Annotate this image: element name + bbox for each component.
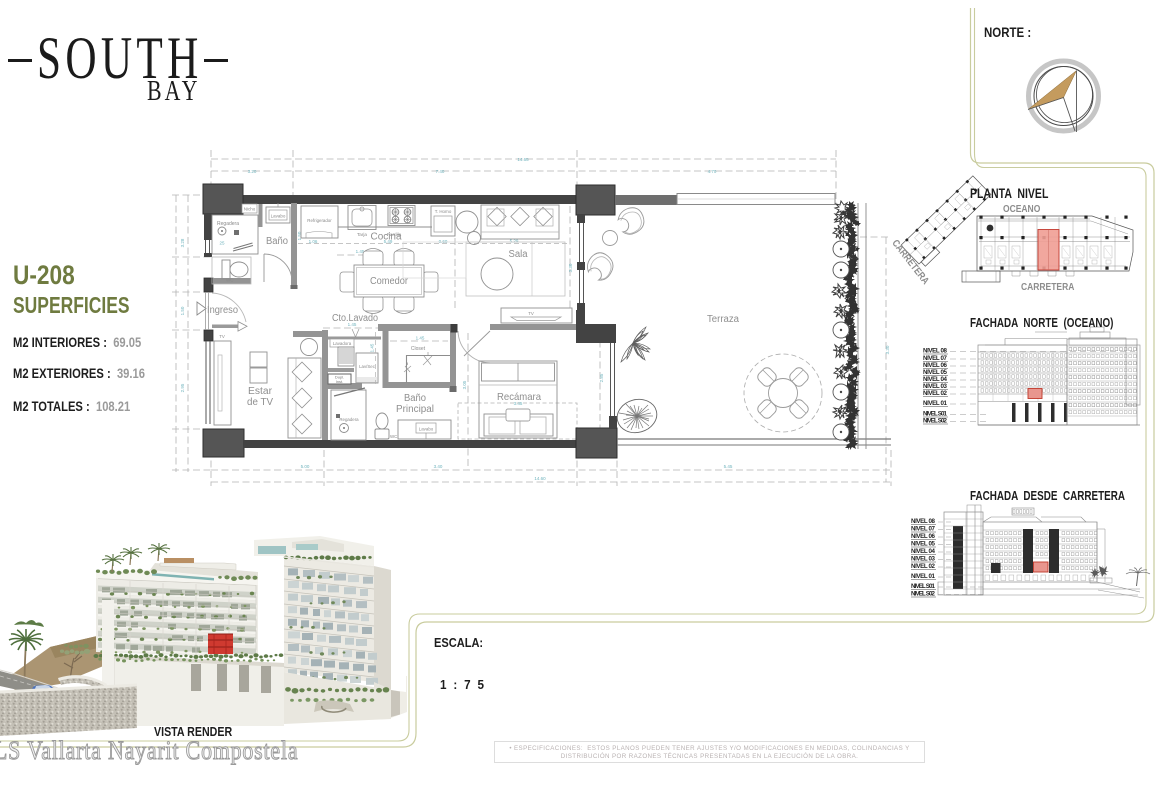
svg-text:Closet: Closet [411,346,426,352]
svg-text:NIVEL 07: NIVEL 07 [923,355,948,362]
svg-text:NIVEL 06: NIVEL 06 [923,362,948,369]
svg-text:1.45: 1.45 [416,336,425,341]
svg-text:de TV: de TV [247,397,273,408]
svg-text:1.45: 1.45 [370,343,375,352]
svg-text:NIVEL 01: NIVEL 01 [923,400,948,407]
svg-text:Inst.: Inst. [336,379,344,384]
svg-text:NIVEL 05: NIVEL 05 [923,369,948,376]
svg-text:Lavabo: Lavabo [271,214,286,219]
svg-text:3.40: 3.40 [434,464,443,469]
svg-text:3.28: 3.28 [180,238,185,247]
svg-text:NIVEL 04: NIVEL 04 [923,376,948,383]
svg-text:NIVEL 07: NIVEL 07 [911,526,936,533]
svg-text:TV: TV [219,334,225,339]
svg-text:1.50: 1.50 [180,306,185,315]
svg-text:NIVEL 03: NIVEL 03 [911,556,936,563]
svg-text:WC: WC [226,278,234,283]
svg-text:Regadera: Regadera [339,417,359,422]
svg-text:Terraza: Terraza [707,314,739,325]
svg-text:NIVEL 03: NIVEL 03 [923,383,948,390]
svg-text:NIVEL S01: NIVEL S01 [923,411,948,418]
svg-text:Lavadora: Lavadora [333,341,352,346]
svg-text:14.65: 14.65 [517,157,529,162]
svg-text:5.00: 5.00 [301,464,310,469]
svg-text:NIVEL S02: NIVEL S02 [923,418,948,425]
svg-text:Principal: Principal [396,404,434,415]
svg-text:Estar: Estar [248,386,273,397]
svg-text:NIVEL 01: NIVEL 01 [911,573,936,580]
svg-text:Nicho: Nicho [244,207,256,212]
svg-text:NIVEL 08: NIVEL 08 [923,348,948,355]
svg-text:Refrigerador: Refrigerador [307,218,332,223]
svg-text:5.45: 5.45 [724,464,733,469]
svg-text:Baño: Baño [404,393,426,404]
svg-text:NIVEL 06: NIVEL 06 [911,533,936,540]
svg-text:NIVEL 02: NIVEL 02 [923,390,948,397]
svg-text:Regadera: Regadera [217,221,239,227]
svg-text:Cocina: Cocina [371,232,402,243]
svg-text:2.85: 2.85 [599,373,604,382]
svg-text:WC: WC [390,434,397,439]
svg-text:Lavabo: Lavabo [419,427,434,432]
svg-text:14.60: 14.60 [534,476,546,481]
svg-text:Sala: Sala [509,249,528,260]
svg-text:TV: TV [528,311,534,316]
svg-text:7.40: 7.40 [436,169,445,174]
svg-text:NIVEL 02: NIVEL 02 [911,563,936,570]
svg-text:Lav/Sec: Lav/Sec [359,364,376,369]
svg-text:3.30: 3.30 [568,263,573,272]
svg-text:3.20: 3.20 [248,169,257,174]
svg-text:T. Horno: T. Horno [435,209,452,214]
svg-text:Ingreso: Ingreso [207,304,238,316]
svg-text:NIVEL S02: NIVEL S02 [911,591,936,598]
svg-text:Tarja: Tarja [357,232,367,237]
svg-text:NIVEL S01: NIVEL S01 [911,583,936,590]
svg-text:Cto.Lavado: Cto.Lavado [332,313,378,324]
svg-text:3.30: 3.30 [885,345,890,354]
svg-text:2.95: 2.95 [180,383,185,392]
svg-text:3.05: 3.05 [462,380,467,389]
svg-text:4.70: 4.70 [708,169,717,174]
svg-text:25: 25 [219,241,225,246]
svg-text:NIVEL 05: NIVEL 05 [911,541,936,548]
svg-text:NIVEL 04: NIVEL 04 [911,548,936,555]
svg-text:Recámara: Recámara [497,391,541,403]
svg-text:NIVEL 08: NIVEL 08 [911,518,936,525]
svg-text:Baño: Baño [266,236,288,247]
